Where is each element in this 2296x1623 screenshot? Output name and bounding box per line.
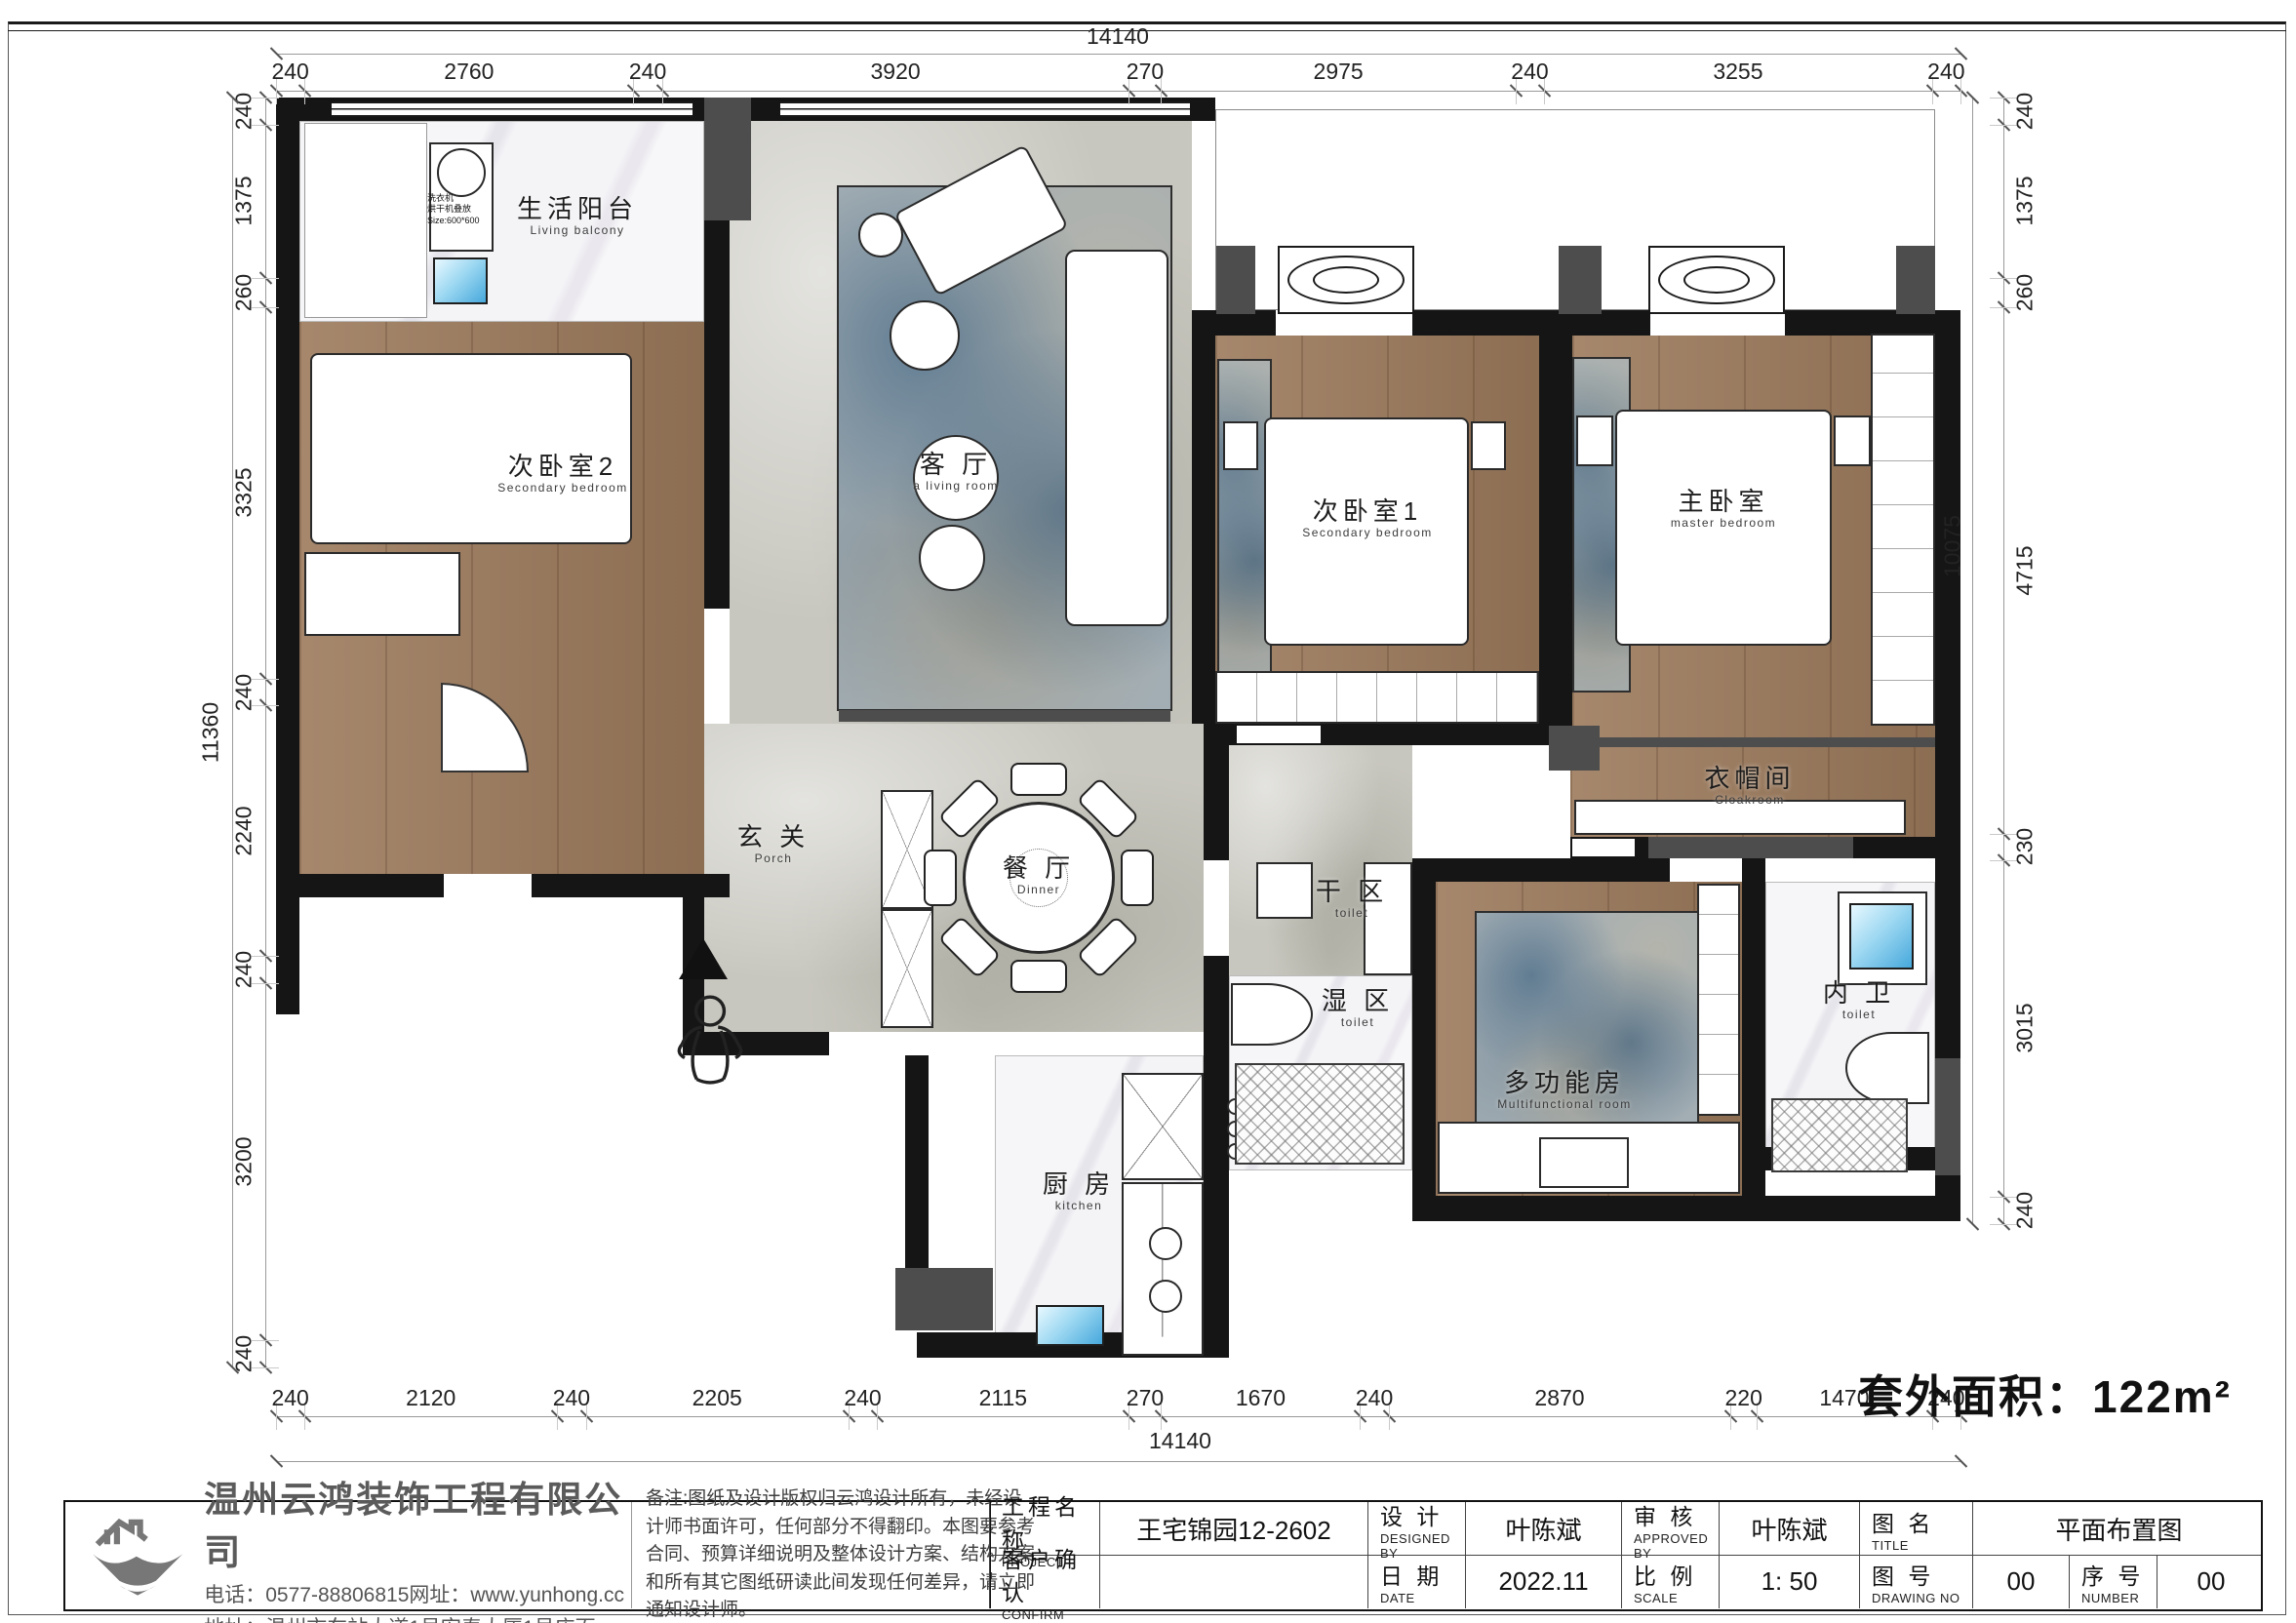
dim-label: 240: [553, 1385, 590, 1411]
dim-label: 240: [629, 59, 666, 85]
field-label: 序 号: [2081, 1558, 2144, 1591]
wall: [1742, 858, 1765, 1221]
wall: [1412, 310, 1650, 336]
area-note: 套外面积：122m²: [1858, 1362, 2232, 1426]
room-name-en: Porch: [737, 852, 810, 866]
nightstand: [1223, 421, 1258, 470]
field-sublabel: DATE: [1380, 1591, 1415, 1605]
door-opening: [1670, 860, 1742, 880]
company-address: 地址：温州市车站大道1号宏泰大厦1号店面: [204, 1612, 631, 1623]
door-opening: [1237, 726, 1321, 743]
room-name-en: kitchen: [1043, 1200, 1115, 1213]
room-label-bedroom2: 次卧室2Secondary bedroom: [497, 453, 628, 495]
field-label: 图 号: [1872, 1558, 1934, 1591]
dim-label: 230: [2012, 828, 2039, 865]
dim-label: 3255: [1713, 59, 1762, 85]
dining-chair: [924, 850, 957, 906]
dim-label: 240: [231, 674, 257, 711]
field-label-design: 设 计DESIGNED BY: [1367, 1502, 1465, 1556]
room-name-en: a living room: [913, 480, 999, 494]
dim-label: 240: [1927, 59, 1964, 85]
dim-line: [2003, 98, 2004, 1224]
field-label: 比 例: [1634, 1558, 1696, 1591]
door-opening: [444, 874, 532, 897]
room-label-master: 主卧室master bedroom: [1671, 488, 1776, 531]
field-sublabel: CONFIRM: [1002, 1607, 1064, 1622]
wall: [905, 1055, 929, 1272]
room-name-en: Multifunctional room: [1497, 1098, 1631, 1112]
dim-line: [232, 98, 233, 1367]
field-label-drawing_no: 图 号DRAWING NO: [1859, 1555, 1972, 1608]
room-name: 衣帽间: [1704, 765, 1795, 794]
field-value-design: 叶陈斌: [1465, 1502, 1621, 1556]
field-sublabel: TITLE: [1872, 1538, 1909, 1553]
kitchen-counter: [1122, 1182, 1204, 1356]
window: [332, 101, 693, 117]
dim-label: 4715: [2012, 546, 2039, 596]
room-name: 次卧室2: [497, 453, 628, 482]
company-name: 温州云鸿装饰工程有限公司: [204, 1470, 631, 1575]
pier: [704, 98, 751, 220]
field-value-number: 00: [2157, 1555, 2265, 1608]
room-name: 玄 关: [737, 823, 810, 852]
room-name: 湿 区: [1322, 987, 1394, 1016]
pier: [1559, 246, 1602, 314]
balcony-cabinet: [304, 123, 427, 318]
field-label: 客户确认: [1002, 1541, 1099, 1607]
room-label-cloakroom: 衣帽间Cloakroom: [1704, 765, 1795, 808]
dim-label: 1375: [231, 177, 257, 226]
field-value-title: 平面布置图: [1972, 1502, 2265, 1556]
room-label-hall: 玄 关Porch: [737, 823, 810, 866]
room-label-bedroom1: 次卧室1Secondary bedroom: [1302, 497, 1433, 540]
north-arrow: [679, 938, 728, 979]
nightstand: [1834, 416, 1871, 466]
room-name: 干 区: [1316, 878, 1388, 907]
field-value-approve: 叶陈斌: [1719, 1502, 1859, 1556]
sink-box: [1256, 862, 1313, 919]
room-name: 多功能房: [1497, 1069, 1631, 1098]
pier: [1216, 246, 1255, 314]
door-opening: [829, 1032, 929, 1055]
room-label-living: 客 厅a living room: [913, 451, 999, 494]
circle-item: [1149, 1227, 1182, 1260]
dim-total-label: 14140: [1149, 1428, 1211, 1454]
dim-label: 2120: [406, 1385, 455, 1411]
toilet: [1845, 1032, 1929, 1104]
room-name: 内 卫: [1823, 979, 1895, 1009]
dim-line: [1972, 98, 1973, 1224]
field-label-approve: 审 核APPROVED BY: [1621, 1502, 1719, 1556]
wall: [1192, 310, 1215, 724]
field-label: 图 名: [1872, 1505, 1934, 1538]
pillow-box: [1539, 1137, 1629, 1188]
room-label-wet: 湿 区toilet: [1322, 987, 1394, 1030]
company-logo: [83, 1509, 192, 1602]
room-name-en: toilet: [1322, 1016, 1394, 1030]
dim-label: 2870: [1534, 1385, 1584, 1411]
room-name: 厨 房: [1043, 1170, 1115, 1200]
room-name: 生活阳台: [517, 195, 638, 224]
dining-chair: [1121, 850, 1154, 906]
company-phone: 电话：0577-88806815网址：www.yunhong.cc: [204, 1579, 631, 1608]
dim-label: 2240: [231, 806, 257, 855]
dim-label: 270: [1127, 1385, 1164, 1411]
dining-chair: [1010, 960, 1067, 993]
room-name: 次卧室1: [1302, 497, 1433, 527]
dim-label: 240: [271, 1385, 308, 1411]
wardrobe: [1697, 884, 1740, 1116]
room-label-dry: 干 区toilet: [1316, 878, 1388, 921]
dim-total-label: 14140: [1087, 23, 1149, 50]
room-name: 主卧室: [1671, 488, 1776, 517]
title-block: 温州云鸿装饰工程有限公司 电话：0577-88806815网址：www.yunh…: [63, 1500, 2263, 1611]
dim-label: 2975: [1314, 59, 1364, 85]
field-label-title: 图 名TITLE: [1859, 1502, 1972, 1556]
wall: [1412, 1196, 1960, 1221]
pier: [1549, 726, 1600, 771]
dim-label: 240: [231, 951, 257, 988]
pier: [1648, 837, 1853, 858]
room-name-en: Cloakroom: [1704, 794, 1795, 808]
room-name-en: Living balcony: [517, 224, 638, 238]
dim-total-label: 11360: [198, 702, 224, 763]
dim-line: [276, 1461, 1960, 1462]
dim-label: 3200: [231, 1137, 257, 1187]
kitchen-tall-cabinet: [1122, 1073, 1204, 1180]
dim-label: 240: [1356, 1385, 1393, 1411]
dim-label: 1670: [1236, 1385, 1286, 1411]
drawing-sheet: 1414024027602403920270297524032552402402…: [0, 0, 2296, 1623]
field-label: 日 期: [1380, 1558, 1443, 1591]
field-label-confirm: 客户确认CONFIRM: [989, 1555, 1099, 1608]
wall: [1204, 1055, 1229, 1358]
wall: [1412, 858, 1436, 1221]
dining-chair: [1010, 763, 1067, 796]
room-name: 客 厅: [913, 451, 999, 480]
shower-floor: [1771, 1098, 1908, 1172]
desk: [304, 552, 460, 636]
dim-label: 240: [2012, 93, 2039, 130]
field-value-date: 2022.11: [1465, 1555, 1621, 1608]
dim-label: 240: [1511, 59, 1548, 85]
wall: [1204, 956, 1229, 1063]
nightstand: [1576, 416, 1613, 466]
room-name-en: Secondary bedroom: [497, 482, 628, 495]
pier: [1935, 1058, 1960, 1175]
room-name-en: toilet: [1316, 907, 1388, 921]
dim-line: [276, 91, 1960, 92]
room-name-en: toilet: [1823, 1009, 1895, 1022]
dim-line: [276, 54, 1960, 55]
field-label-date: 日 期DATE: [1367, 1555, 1465, 1608]
field-label-number: 序 号NUMBER: [2069, 1555, 2157, 1608]
dim-line: [265, 98, 266, 1367]
bed: [310, 353, 632, 544]
dim-label: 240: [271, 59, 308, 85]
dim-label: 220: [1725, 1385, 1762, 1411]
dim-label: 240: [844, 1385, 881, 1411]
pier: [1572, 737, 1935, 747]
dim-label: 2205: [693, 1385, 742, 1411]
sofa: [1065, 250, 1168, 626]
washer-annotation: 洗衣机 烘干机叠放 Size:600*600: [427, 193, 495, 226]
room-label-toilet2: 内 卫toilet: [1823, 979, 1895, 1022]
room-label-kitchen: 厨 房kitchen: [1043, 1170, 1115, 1213]
field-label: 审 核: [1634, 1498, 1696, 1531]
dim-label: 1375: [2012, 177, 2039, 226]
shower-floor: [1235, 1063, 1405, 1165]
room-name-en: master bedroom: [1671, 517, 1776, 531]
dim-label: 260: [231, 274, 257, 311]
glass-fixture: [1036, 1305, 1104, 1346]
field-sublabel: DRAWING NO: [1872, 1591, 1960, 1605]
glass-fixture: [433, 257, 488, 304]
circle-item: [858, 213, 903, 257]
person-figure: [669, 991, 751, 1085]
circle-item: [890, 300, 960, 371]
wardrobe: [1215, 671, 1539, 724]
dim-line: [276, 1416, 1960, 1417]
dim-label: 3015: [2012, 1004, 2039, 1053]
field-value-project: 王宅锦园12-2602: [1099, 1502, 1367, 1556]
wall: [1436, 858, 1670, 882]
room-label-balcony: 生活阳台Living balcony: [517, 195, 638, 238]
dim-label: 240: [2012, 1192, 2039, 1229]
pier: [1896, 246, 1935, 314]
dim-label: 3920: [871, 59, 921, 85]
circle-item: [1149, 1280, 1182, 1313]
room-name-en: Secondary bedroom: [1302, 527, 1433, 540]
dim-label: 2760: [444, 59, 494, 85]
field-value-drawing_no: 00: [1972, 1555, 2069, 1608]
field-sublabel: SCALE: [1634, 1591, 1678, 1605]
circle-item: [437, 148, 486, 197]
dim-label: 3325: [231, 468, 257, 518]
pier: [895, 1268, 993, 1330]
room-name: 餐 厅: [1003, 854, 1075, 884]
glass-fixture: [1849, 903, 1914, 970]
dim-total-label: 10075: [1940, 515, 1966, 577]
room-label-dining: 餐 厅Dinner: [1003, 854, 1075, 897]
dim-label: 2115: [979, 1385, 1027, 1411]
nightstand: [1471, 421, 1506, 470]
bay-ornament-inner: [1313, 266, 1379, 294]
field-sublabel: NUMBER: [2081, 1591, 2139, 1605]
dim-label: 260: [2012, 274, 2039, 311]
field-label: 设 计: [1380, 1498, 1443, 1531]
wall: [1539, 334, 1572, 726]
wardrobe: [1871, 334, 1935, 726]
dim-label: 270: [1127, 59, 1164, 85]
room-name-en: Dinner: [1003, 884, 1075, 897]
bay-ornament-inner: [1683, 266, 1750, 294]
field-label-scale: 比 例SCALE: [1621, 1555, 1719, 1608]
field-value-confirm: [1099, 1555, 1367, 1608]
door-opening: [1572, 839, 1635, 856]
circle-item: [919, 525, 985, 591]
field-value-scale: 1: 50: [1719, 1555, 1859, 1608]
room-label-multi: 多功能房Multifunctional room: [1497, 1069, 1631, 1112]
pier: [839, 710, 1170, 722]
company-block: 温州云鸿装饰工程有限公司 电话：0577-88806815网址：www.yunh…: [65, 1502, 631, 1608]
storage-cabinet: [881, 909, 933, 1028]
